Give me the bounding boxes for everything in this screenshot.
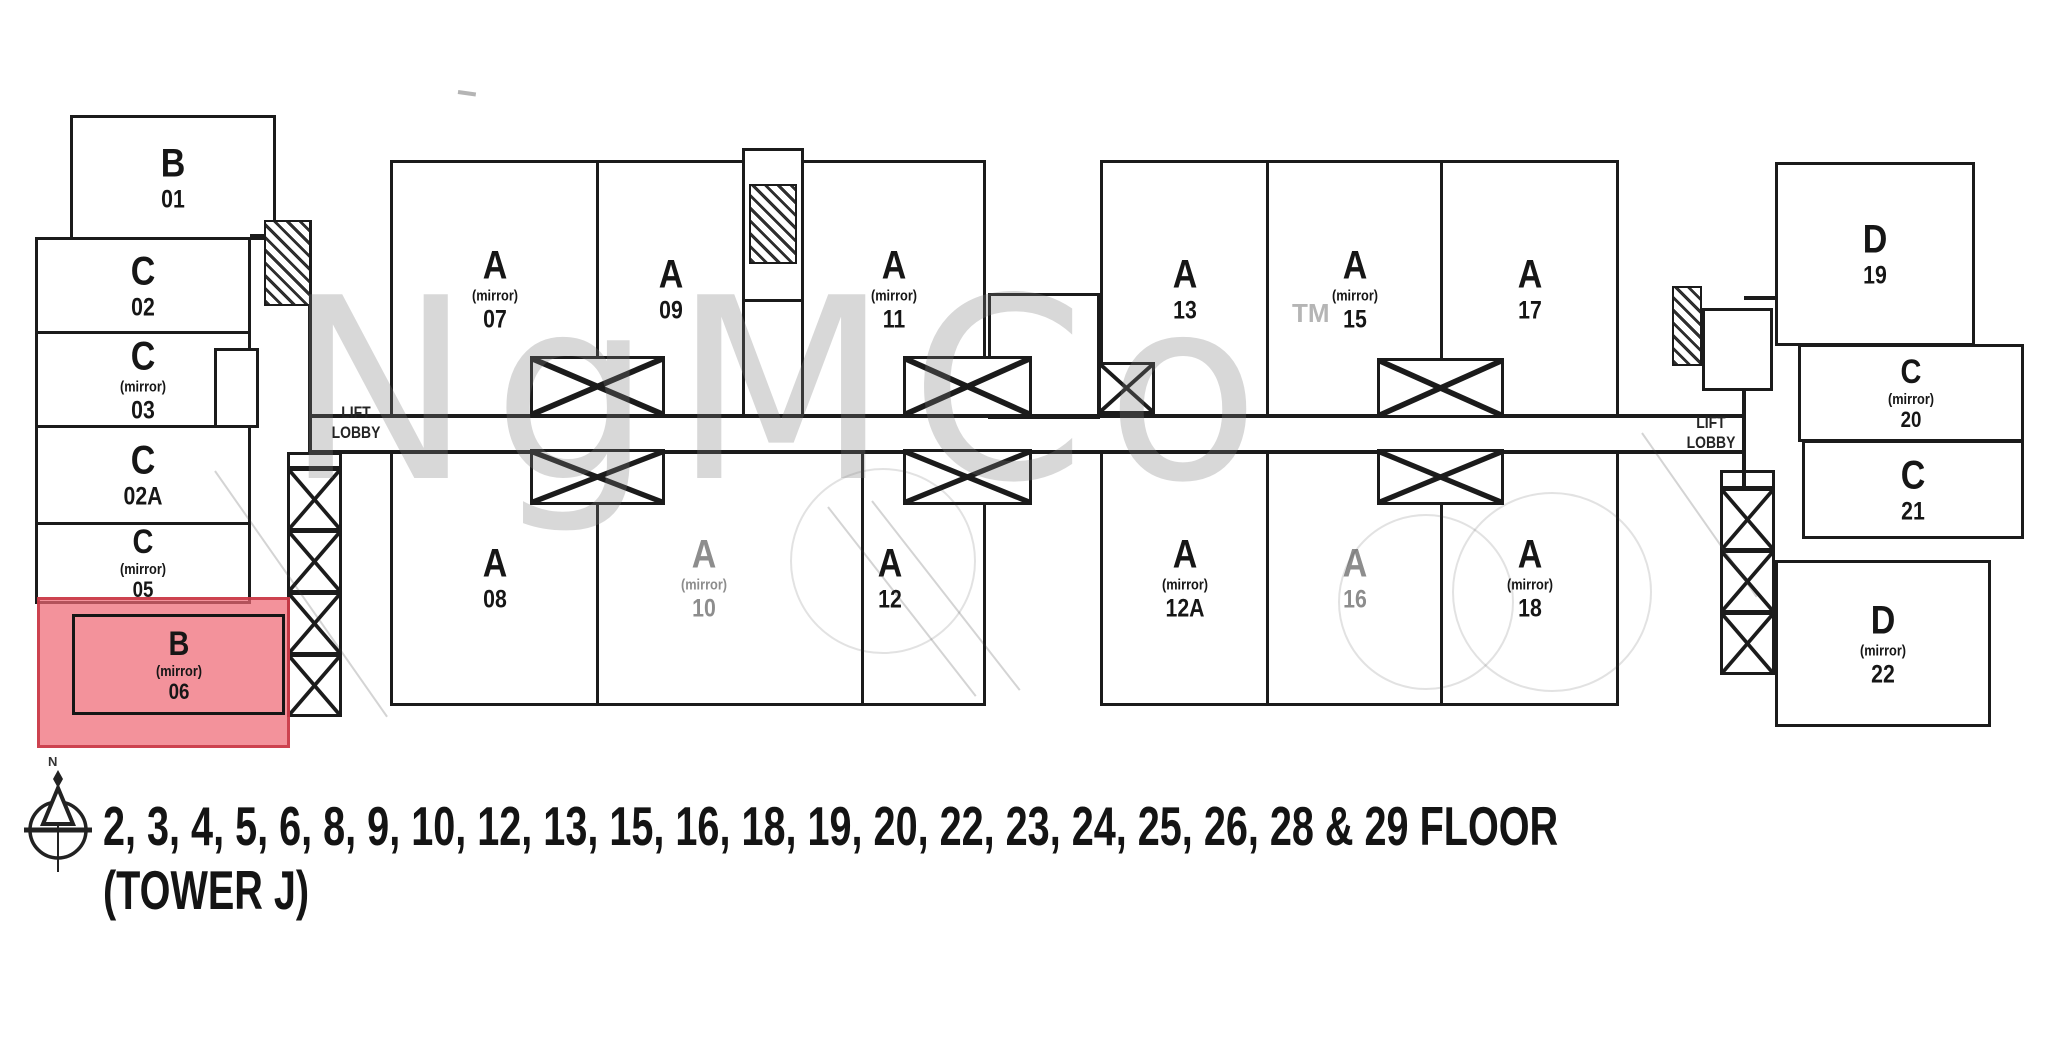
service-room (1702, 308, 1773, 391)
unit-mirror-tag: (mirror) (681, 578, 727, 593)
service-shaft (530, 356, 665, 417)
unit-type: B (155, 627, 201, 661)
unit-type: A (1517, 254, 1542, 294)
unit-number: 03 (120, 398, 166, 423)
staircase-hatch (749, 184, 797, 264)
lift-shaft (287, 592, 342, 655)
floor-list-caption: 2, 3, 4, 5, 6, 8, 9, 10, 12, 13, 15, 16,… (103, 794, 1558, 858)
lift-lobby-line1: LIFT (320, 403, 392, 423)
unit-mirror-tag: (mirror) (1161, 578, 1207, 593)
unit-type: A (471, 245, 517, 285)
watermark-tm: TM (1292, 298, 1330, 329)
lift-lobby-label-right: LIFT LOBBY (1674, 413, 1748, 454)
unit-type: C (1888, 355, 1934, 389)
unit-number: 22 (1860, 662, 1906, 687)
compass-north-label: N (48, 754, 57, 769)
lift-lobby-label-left: LIFT LOBBY (320, 403, 392, 444)
service-shaft (903, 356, 1032, 417)
floor-plan-tower-j: NgMCo TM B01 C02 C(mirror)03 C02A C(mirr… (0, 0, 2048, 1050)
compass-icon (18, 770, 98, 879)
unit-type: A (1161, 535, 1207, 575)
unit-mirror-tag: (mirror) (870, 288, 916, 303)
service-shaft (1377, 358, 1504, 418)
service-room (214, 348, 259, 428)
unit-type: C (1901, 455, 1926, 495)
service-shaft (530, 449, 665, 505)
unit-A12A-mirror: A(mirror)12A (1100, 450, 1269, 706)
scan-artifact-arc (790, 468, 976, 654)
unit-C02: C02 (35, 237, 251, 334)
unit-number: 06 (155, 681, 201, 703)
unit-type: C (124, 441, 163, 481)
unit-C20-mirror: C(mirror)20 (1798, 344, 2024, 442)
unit-number: 20 (1888, 409, 1934, 431)
lift-shaft (287, 468, 342, 531)
unit-type: B (161, 143, 186, 183)
unit-number: 19 (1863, 264, 1888, 289)
unit-mirror-tag: (mirror) (1888, 392, 1934, 407)
unit-D19: D19 (1775, 162, 1975, 346)
lift-shaft-cap (1720, 470, 1775, 489)
service-shaft (1098, 362, 1155, 414)
service-shaft (1377, 449, 1504, 505)
lift-lobby-line2: LOBBY (1674, 433, 1748, 453)
unit-number: 15 (1331, 307, 1377, 332)
unit-mirror-tag: (mirror) (120, 562, 166, 577)
unit-number: 09 (658, 298, 683, 323)
unit-number: 12A (1161, 597, 1207, 622)
tower-caption: (TOWER J) (103, 858, 309, 922)
lift-shaft (287, 654, 342, 717)
scan-artifact-dash (458, 90, 476, 96)
unit-type: A (1172, 254, 1197, 294)
lift-shaft-cap (287, 452, 342, 469)
staircase-hatch (264, 220, 311, 306)
unit-mirror-tag: (mirror) (155, 664, 201, 679)
unit-mirror-tag: (mirror) (1860, 643, 1906, 658)
unit-number: 21 (1901, 499, 1926, 524)
staircase-hatch (1672, 286, 1702, 366)
unit-type: A (1331, 245, 1377, 285)
unit-type: D (1863, 220, 1888, 260)
unit-number: 10 (681, 597, 727, 622)
unit-C21: C21 (1802, 440, 2024, 539)
unit-C05-mirror: C(mirror)05 (35, 522, 251, 604)
unit-number: 07 (471, 307, 517, 332)
unit-type: C (120, 525, 166, 559)
scan-artifact-arc (1338, 514, 1514, 690)
unit-number: 02 (131, 295, 156, 320)
lift-shaft (1720, 488, 1775, 551)
unit-number: 13 (1172, 298, 1197, 323)
lift-lobby-line1: LIFT (1674, 413, 1748, 433)
unit-mirror-tag: (mirror) (1331, 288, 1377, 303)
unit-number: 02A (124, 485, 163, 510)
unit-mirror-tag: (mirror) (120, 379, 166, 394)
unit-type: D (1860, 600, 1906, 640)
lift-lobby-line2: LOBBY (320, 423, 392, 443)
lift-shaft (1720, 612, 1775, 675)
unit-number: 11 (870, 307, 916, 332)
unit-type: A (870, 245, 916, 285)
unit-type: A (681, 535, 727, 575)
unit-type: C (120, 336, 166, 376)
unit-type: A (482, 544, 507, 584)
core-wall (1744, 296, 1777, 300)
unit-B01: B01 (70, 115, 276, 240)
unit-B06-mirror: B(mirror)06 (72, 614, 285, 715)
unit-D22-mirror: D(mirror)22 (1775, 560, 1991, 727)
unit-number: 17 (1517, 298, 1542, 323)
unit-type: C (131, 251, 156, 291)
unit-mirror-tag: (mirror) (471, 288, 517, 303)
unit-number: 08 (482, 588, 507, 613)
unit-type: A (658, 254, 683, 294)
unit-number: 01 (161, 187, 186, 212)
